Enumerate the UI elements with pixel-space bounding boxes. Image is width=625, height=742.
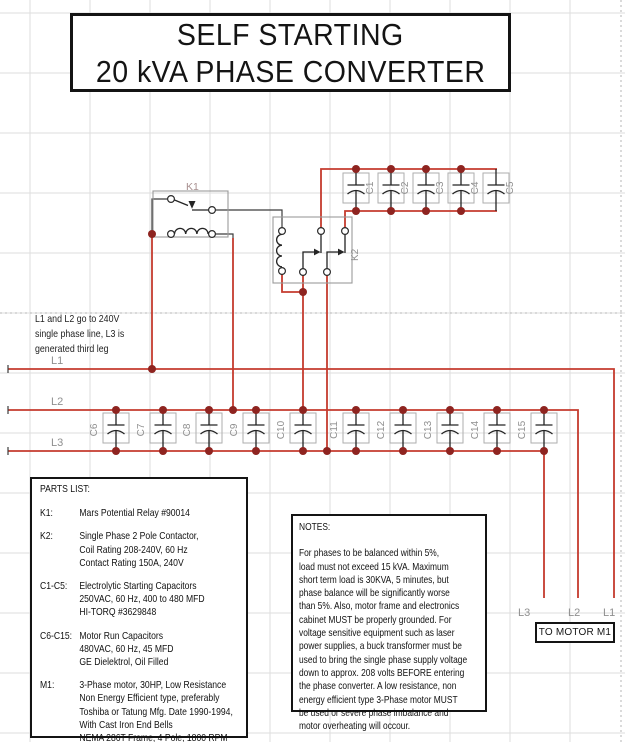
capacitor-label: C8 — [182, 423, 193, 436]
capacitor-label: C4 — [470, 181, 481, 194]
capacitor-c15: C15 — [517, 406, 557, 455]
junction-dot — [446, 447, 454, 455]
junction-dot — [493, 406, 501, 414]
schematic-page: K1 K2 C1C2C3C4C5 C6C7C8C9C10C11C12C13C14… — [0, 0, 625, 742]
capacitor-label: C13 — [423, 420, 434, 439]
part-description-line: Toshiba or Tatung Mfg. Date 1990-1994, — [79, 706, 232, 719]
capacitor-label: C2 — [400, 181, 411, 194]
parts-list-item: M1:3-Phase motor, 30HP, Low ResistanceNo… — [40, 679, 233, 742]
parts-list-item: C1-C5:Electrolytic Starting Capacitors25… — [40, 580, 233, 620]
capacitor-c10: C10 — [276, 406, 316, 455]
part-description: Mars Potential Relay #90014 — [79, 507, 190, 520]
notes-content: NOTES: For phases to be balanced within … — [299, 521, 467, 733]
k2-coil-icon — [277, 234, 282, 266]
to-motor-label: TO MOTOR M1 — [539, 627, 611, 638]
notes-line: For phases to be balanced within 5%, — [299, 547, 467, 560]
contactor-k2-label: K2 — [350, 248, 361, 261]
part-description-line: Electrolytic Starting Capacitors — [79, 580, 204, 593]
k1-terminal — [168, 231, 175, 238]
parts-list-box: PARTS LIST: K1:Mars Potential Relay #900… — [30, 477, 248, 738]
part-description-line: Non Energy Efficient type, preferably — [79, 692, 232, 705]
notes-line: short term load is 30KVA, 5 minutes, but — [299, 574, 467, 587]
notes-line: used to bring the single phase supply vo… — [299, 654, 467, 667]
part-description-line: HI-TORQ #3629848 — [79, 606, 204, 619]
parts-list-title: PARTS LIST: — [40, 483, 233, 496]
junction-dot — [399, 406, 407, 414]
part-description-line: Single Phase 2 Pole Contactor, — [79, 530, 198, 543]
k1-coil-icon — [175, 228, 209, 234]
junction-dot — [112, 447, 120, 455]
part-description-line: Mars Potential Relay #90014 — [79, 507, 190, 520]
junction-dot — [159, 406, 167, 414]
parts-list-content: PARTS LIST: K1:Mars Potential Relay #900… — [40, 483, 233, 742]
part-description: 3-Phase motor, 30HP, Low ResistanceNon E… — [79, 679, 232, 742]
capacitor-c6: C6 — [89, 406, 129, 455]
k2-contact1-arrow-icon — [314, 249, 321, 256]
part-description-line: With Cast Iron End Bells — [79, 719, 232, 732]
part-ref: M1: — [40, 679, 79, 742]
notes-line: than 5%. Also, motor frame and electroni… — [299, 600, 467, 613]
notes-line: the phase converter. A low resistance, n… — [299, 680, 467, 693]
k2-terminal — [324, 269, 331, 276]
run-capacitor-bank: C6C7C8C9C10C11C12C13C14C15 — [89, 406, 557, 455]
motor-feed-l1: L1 — [603, 607, 615, 619]
part-description-line: GE Dielektrol, Oil Filled — [79, 656, 173, 669]
capacitor-c3: C3 — [413, 165, 446, 215]
capacitor-label: C6 — [89, 423, 100, 436]
starting-capacitor-bank: C1C2C3C4C5 — [343, 165, 516, 215]
k1-contact-arm — [175, 200, 189, 206]
k2-terminal — [318, 228, 325, 235]
junction-dot — [540, 447, 548, 455]
notes-line: energy efficient type 3-Phase motor MUST — [299, 694, 467, 707]
wire-k1-to-k2coil — [215, 210, 282, 228]
junction-dot — [252, 447, 260, 455]
wire-startcap-top — [321, 169, 497, 228]
relay-k1-outline — [153, 191, 228, 237]
junction-dot — [299, 406, 307, 414]
capacitor-c12: C12 — [376, 406, 416, 455]
notes-line: motor overheating will occour. — [299, 720, 467, 733]
capacitor-c13: C13 — [423, 406, 463, 455]
k1-contact-arrow-icon — [189, 201, 196, 209]
capacitor-label: C1 — [365, 181, 376, 194]
capacitor-c11: C11 — [329, 406, 369, 455]
label-l2: L2 — [51, 396, 63, 408]
junction-dot — [229, 406, 237, 414]
capacitor-c14: C14 — [470, 406, 510, 455]
side-note-line: single phase line, L3 is — [35, 327, 124, 342]
page-title-line2: 20 kVA PHASE CONVERTER — [96, 53, 485, 90]
wire-k1-contact-left — [152, 199, 168, 234]
junction-dot — [148, 365, 156, 373]
junction-dot — [323, 447, 331, 455]
part-ref: K1: — [40, 507, 79, 520]
junction-dot — [205, 447, 213, 455]
junction-dot — [352, 406, 360, 414]
parts-list-item: K1:Mars Potential Relay #90014 — [40, 507, 233, 520]
k2-contact2-arm — [327, 252, 339, 269]
capacitor-label: C12 — [376, 420, 387, 439]
notes-line: phase balance will be significantly wors… — [299, 587, 467, 600]
k2-terminal — [300, 269, 307, 276]
junction-dot — [399, 447, 407, 455]
wire-startcap-bottom — [345, 211, 497, 228]
junction-dot — [422, 207, 430, 215]
capacitor-label: C7 — [136, 423, 147, 436]
notes-line: voltage sensitive equipment such as lase… — [299, 627, 467, 640]
notes-box: NOTES: For phases to be balanced within … — [291, 514, 487, 712]
k2-contact1-arm — [303, 252, 315, 269]
motor-feed-l2: L2 — [568, 607, 580, 619]
capacitor-label: C10 — [276, 420, 287, 439]
parts-list-item: K2:Single Phase 2 Pole Contactor,Coil Ra… — [40, 530, 233, 570]
capacitor-c1: C1 — [343, 165, 376, 215]
part-description-line: 3-Phase motor, 30HP, Low Resistance — [79, 679, 232, 692]
capacitor-label: C9 — [229, 423, 240, 436]
k2-terminal — [279, 228, 286, 235]
notes-line: load must not exceed 15 kVA. Maximum — [299, 561, 467, 574]
part-ref: C6-C15: — [40, 630, 79, 670]
title-box: SELF STARTING 20 kVA PHASE CONVERTER — [70, 13, 511, 92]
page-title-line1: SELF STARTING — [177, 16, 404, 53]
part-description: Motor Run Capacitors480VAC, 60 Hz, 45 MF… — [79, 630, 173, 670]
junction-dot — [205, 406, 213, 414]
capacitor-c7: C7 — [136, 406, 176, 455]
part-ref: K2: — [40, 530, 79, 570]
capacitor-c2: C2 — [378, 165, 411, 215]
k1-terminal — [209, 207, 216, 214]
part-description-line: NEMA 286T Frame, 4 Pole, 1800 RPM — [79, 732, 232, 742]
junction-dot — [387, 165, 395, 173]
part-description-line: Motor Run Capacitors — [79, 630, 173, 643]
junction-dot — [352, 447, 360, 455]
parts-list-item: C6-C15:Motor Run Capacitors480VAC, 60 Hz… — [40, 630, 233, 670]
part-ref: C1-C5: — [40, 580, 79, 620]
junction-dot — [540, 406, 548, 414]
part-description-line: Coil Rating 208-240V, 60 Hz — [79, 544, 198, 557]
notes-title: NOTES: — [299, 521, 467, 534]
junction-dot — [457, 165, 465, 173]
k1-terminal — [168, 196, 175, 203]
junction-dot — [352, 165, 360, 173]
junction-dot — [112, 406, 120, 414]
contactor-k2: K2 — [273, 217, 361, 283]
capacitor-label: C14 — [470, 420, 481, 439]
label-l3: L3 — [51, 437, 63, 449]
side-note-line: generated third leg — [35, 342, 124, 357]
to-motor-box: TO MOTOR M1 — [535, 622, 615, 643]
k2-contact2-arrow-icon — [338, 249, 345, 256]
k1-terminal — [209, 231, 216, 238]
capacitor-label: C11 — [329, 421, 340, 439]
part-description: Electrolytic Starting Capacitors250VAC, … — [79, 580, 204, 620]
side-note: L1 and L2 go to 240V single phase line, … — [35, 312, 124, 357]
junction-dot — [299, 447, 307, 455]
side-note-line: L1 and L2 go to 240V — [35, 312, 124, 327]
part-description-line: 250VAC, 60 Hz, 400 to 480 MFD — [79, 593, 204, 606]
junction-dot — [457, 207, 465, 215]
capacitor-label: C5 — [505, 181, 516, 194]
junction-dot — [159, 447, 167, 455]
relay-k1: K1 — [153, 181, 228, 237]
junction-dot — [493, 447, 501, 455]
k2-terminal — [342, 228, 349, 235]
part-description: Single Phase 2 Pole Contactor,Coil Ratin… — [79, 530, 198, 570]
notes-line: cabinet MUST be properly grounded. For — [299, 614, 467, 627]
part-description-line: Contact Rating 150A, 240V — [79, 557, 198, 570]
junction-dot — [422, 165, 430, 173]
junction-dot — [252, 406, 260, 414]
part-description-line: 480VAC, 60 Hz, 45 MFD — [79, 643, 173, 656]
capacitor-label: C3 — [435, 181, 446, 194]
motor-feed-l3: L3 — [518, 607, 530, 619]
junction-dot — [299, 288, 307, 296]
relay-k1-label: K1 — [186, 181, 199, 193]
junction-dot — [148, 230, 156, 238]
junction-dot — [446, 406, 454, 414]
junction-dot — [352, 207, 360, 215]
notes-line: be used or severe phase imbalance and — [299, 707, 467, 720]
capacitor-label: C15 — [517, 420, 528, 439]
junction-dot — [387, 207, 395, 215]
capacitor-c4: C4 — [448, 165, 481, 215]
capacitor-c8: C8 — [182, 406, 222, 455]
k2-terminal — [279, 268, 286, 275]
notes-line: down to approx. 208 volts BEFORE enterin… — [299, 667, 467, 680]
notes-line: power supplies, a buck transformer must … — [299, 640, 467, 653]
capacitor-c5: C5 — [483, 169, 516, 211]
